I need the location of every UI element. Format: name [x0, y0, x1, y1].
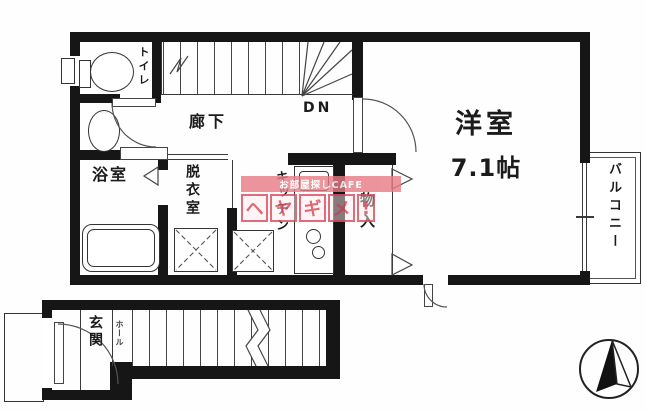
toilet-door-arc [112, 103, 156, 147]
entry-hall-label: ホール [114, 320, 125, 347]
storage-door-icon [392, 254, 412, 275]
watermark-tagline: お部屋探しCAFE [241, 176, 401, 192]
hallway-label: 廊下 [189, 108, 227, 132]
toilet-label: トイレ [135, 46, 151, 88]
bath-folding-door-icon [144, 167, 158, 185]
watermark-brand-char: ギ [299, 194, 326, 222]
balcony-label: バルコニー [604, 162, 623, 252]
watermark-brand: ヘ ヤ ギ メ ! [241, 194, 401, 222]
compass-north-icon [580, 340, 638, 398]
stairs-down-label: DN [303, 100, 332, 116]
dressing-room-label: 脱衣室 [182, 164, 202, 218]
watermark-brand-char: メ [328, 194, 355, 222]
stairs-break-band [246, 310, 270, 366]
bedroom-door-arc [363, 99, 416, 152]
watermark-brand-char: ヘ [241, 194, 268, 222]
watermark: お部屋探しCAFE ヘ ヤ ギ メ ! [241, 176, 401, 222]
exterior-door-arc [424, 284, 447, 307]
entrance-label: 玄関 [85, 315, 105, 349]
stairs-break-mark [170, 56, 188, 74]
western-room-size: 7.1帖 [420, 148, 552, 183]
floor-plan: トイレ 廊下 DN 洋室 7.1帖 バルコニー 浴室 脱衣室 キッチン 物入 玄… [0, 0, 646, 412]
kitchen-tile-cross [234, 232, 272, 270]
watermark-brand-char: ヤ [270, 194, 297, 222]
watermark-brand-suffix: ! [357, 194, 375, 222]
washer-pan-cross [176, 230, 216, 270]
stairs-winder-lines [302, 42, 352, 96]
bathroom-label: 浴室 [92, 161, 128, 185]
western-room-label: 洋室 [420, 102, 552, 141]
